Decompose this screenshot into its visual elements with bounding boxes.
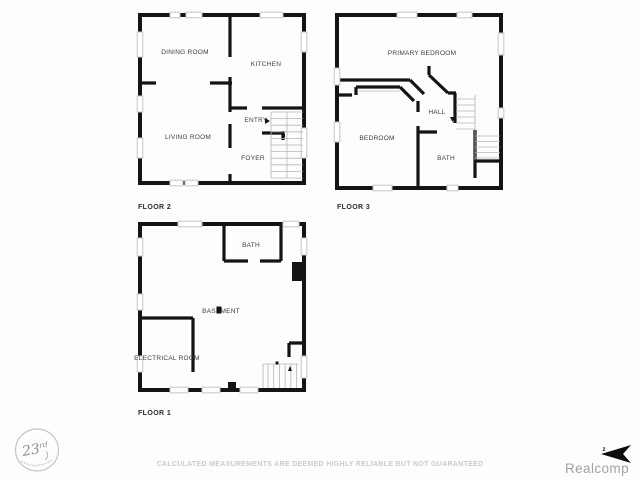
floor-plan-canvas: DINING ROOM KITCHEN LIVING ROOM ENTRY FO… [0,0,640,480]
room-label-bath-floor3: BATH [437,155,455,162]
floor1-support-column [217,307,222,314]
stamp-suffix: rd [38,440,48,450]
floor3-stairs [359,91,500,160]
floor1-stairs [263,364,298,388]
room-label-hall: HALL [428,109,445,116]
window [178,221,202,227]
window [457,12,472,18]
room-label-living-room: LIVING ROOM [165,134,211,141]
room-label-foyer: FOYER [241,155,265,162]
floor2-stairs [271,112,303,178]
walls-layer [140,15,501,390]
realcomp-wordmark: Realcomp [565,461,629,476]
room-label-bedroom: BEDROOM [359,135,394,142]
window [137,238,143,256]
stamp-arc-text [21,459,53,466]
window [397,12,417,18]
floor1-stair-direction-arrow [288,366,292,371]
room-label-electrical-room: ELECTRICAL ROOM [134,355,200,362]
floor-labels-layer: FLOOR 2 FLOOR 3 FLOOR 1 [138,204,370,417]
window [301,32,307,52]
window [202,387,220,393]
realcomp-logo: z Realcomp [565,445,631,476]
realcomp-north-mark: z [603,447,606,453]
floor1-label: FLOOR 1 [138,410,171,417]
window [137,138,143,158]
window [301,238,307,255]
window [301,356,307,378]
window [283,221,299,227]
disclaimer-text: CALCULATED MEASUREMENTS ARE DEEMED HIGHL… [157,461,484,468]
window [498,33,504,55]
floor1-wall-stub [228,382,236,390]
window [334,68,340,85]
room-label-kitchen: KITCHEN [251,61,281,68]
window [137,294,143,310]
floor3-label: FLOOR 3 [337,204,370,211]
floor1-stair-post [276,362,279,365]
window [186,12,202,18]
window [137,96,143,112]
floor3-interior-walls [337,66,501,188]
floor2-label: FLOOR 2 [138,204,171,211]
floor-plan-sheet: DINING ROOM KITCHEN LIVING ROOM ENTRY FO… [0,0,640,480]
room-label-bath-floor1: BATH [242,242,260,249]
window [260,12,283,18]
window [170,12,180,18]
stamp-number: 23rd [20,440,50,461]
window [137,32,143,57]
window [373,185,392,191]
room-label-entry: ENTRY [244,117,268,124]
room-label-primary-bedroom: PRIMARY BEDROOM [388,50,457,57]
room-label-dining-room: DINING ROOM [161,49,209,56]
window [185,180,198,186]
window [170,180,183,186]
window [447,185,458,191]
floor1-chimney [292,262,303,281]
window [170,387,188,393]
window [301,128,307,158]
photographer-stamp: 23rd [16,429,59,471]
window [240,387,258,393]
window [498,108,504,118]
stamp-flourish [45,451,48,460]
window [334,122,340,142]
floor1-interior-walls [140,226,304,372]
floor2-stair-post [282,134,285,137]
